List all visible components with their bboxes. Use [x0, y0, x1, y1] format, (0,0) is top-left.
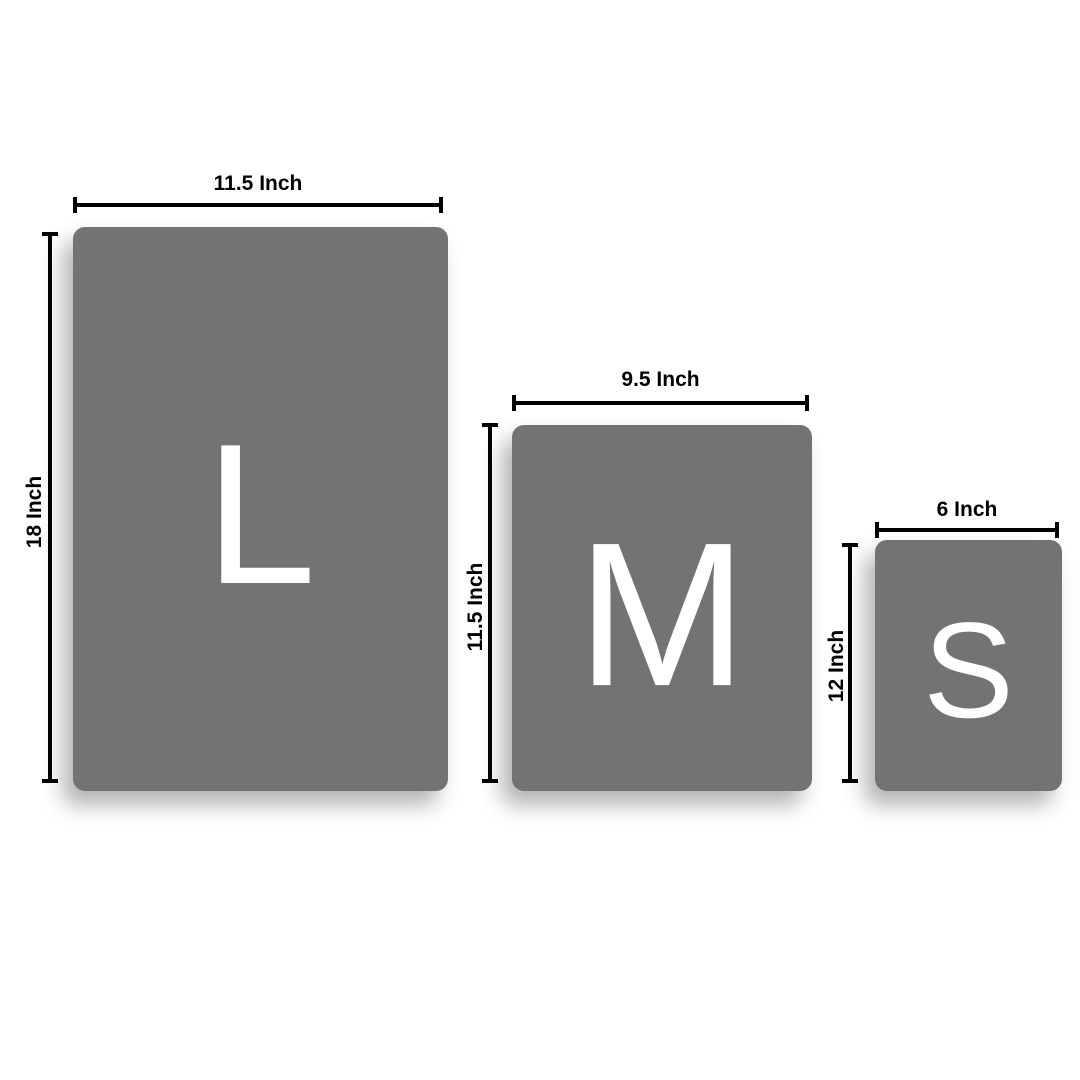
height-dimension-label-medium: 11.5 Inch [464, 537, 488, 677]
size-letter-large: L [205, 415, 316, 615]
height-dimension-label-small: 12 Inch [825, 596, 849, 736]
size-letter-medium: M [577, 512, 748, 717]
width-dimension-line-medium [512, 401, 809, 405]
width-dimension-line-large [73, 203, 443, 207]
height-dimension-line-large [48, 232, 52, 783]
panel-medium: M [512, 425, 812, 791]
width-dimension-label-large: 11.5 Inch [73, 172, 443, 196]
width-dimension-line-small [875, 528, 1059, 532]
size-comparison-diagram: 11.5 Inch 18 Inch L 9.5 Inch 11.5 Inch M… [0, 0, 1080, 1080]
height-dimension-line-small [848, 543, 852, 783]
panel-large: L [73, 227, 448, 791]
size-letter-small: S [923, 602, 1014, 738]
width-dimension-label-medium: 9.5 Inch [512, 368, 809, 392]
height-dimension-label-large: 18 Inch [23, 442, 47, 582]
height-dimension-line-medium [488, 423, 492, 783]
width-dimension-label-small: 6 Inch [875, 498, 1059, 522]
panel-small: S [875, 540, 1062, 791]
